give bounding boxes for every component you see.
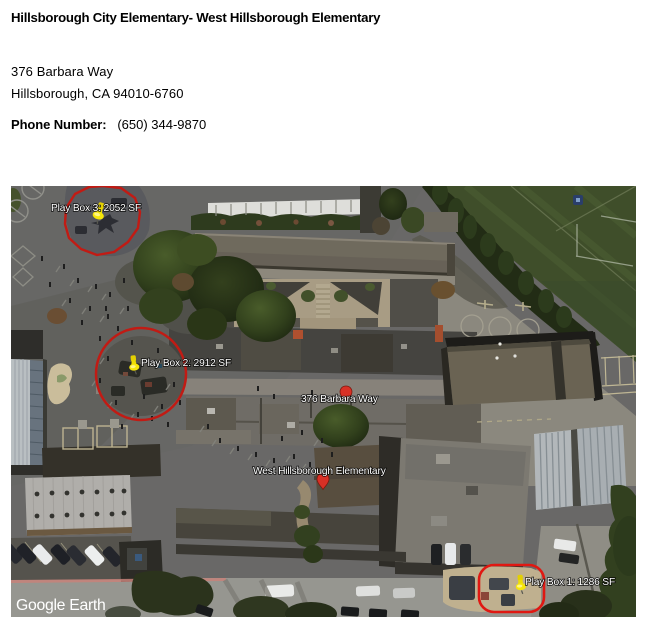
svg-text:West Hillsborough Elementary: West Hillsborough Elementary [253, 466, 387, 477]
svg-text:Play Box 1: 1286 SF: Play Box 1: 1286 SF [525, 577, 615, 588]
svg-text:Google Earth: Google Earth [16, 597, 106, 614]
svg-text:Play Box 2: 2912 SF: Play Box 2: 2912 SF [141, 358, 231, 369]
svg-text:Play Box 3: 2052 SF: Play Box 3: 2052 SF [51, 203, 141, 214]
svg-text:376 Barbara Way: 376 Barbara Way [301, 394, 379, 405]
